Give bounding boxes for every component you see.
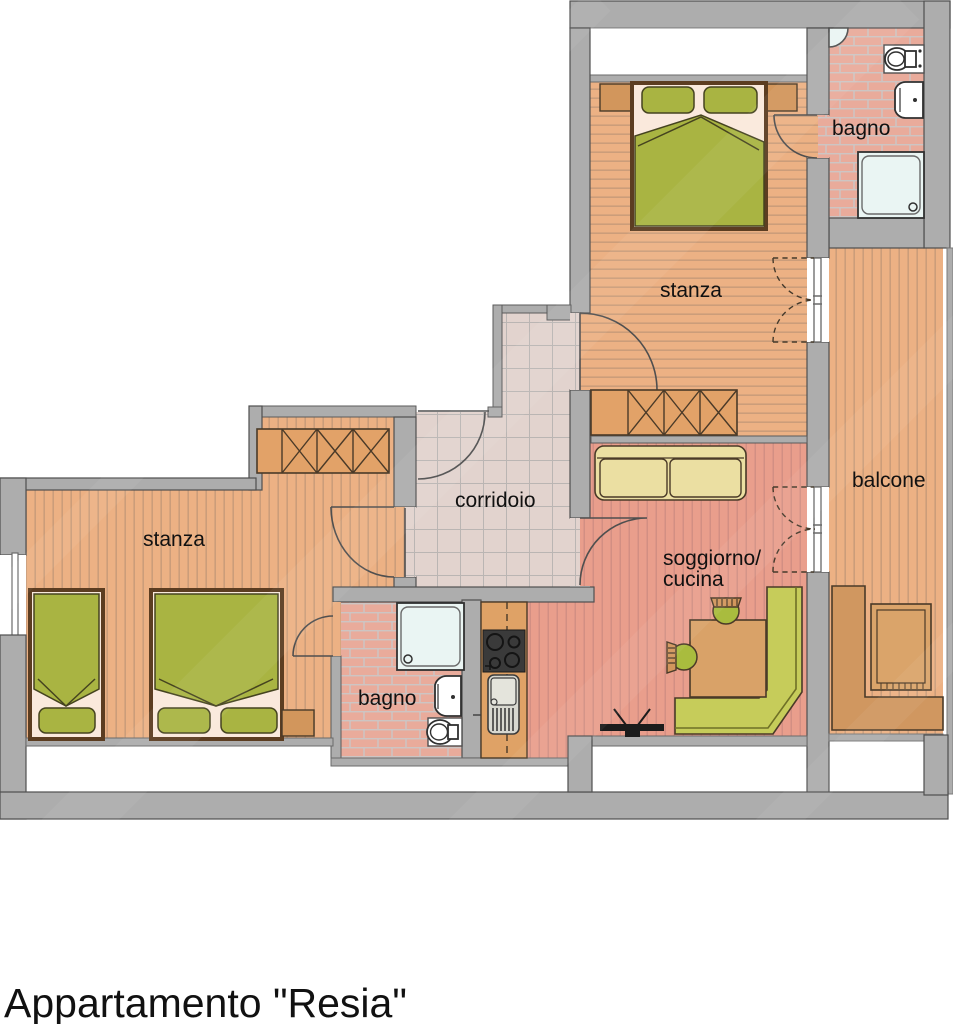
svg-text:bagno: bagno [358,687,416,710]
svg-text:stanza: stanza [660,279,722,302]
svg-text:Appartamento "Resia": Appartamento "Resia" [4,980,407,1024]
svg-text:soggiorno/: soggiorno/ [663,547,761,570]
svg-text:stanza: stanza [143,528,205,551]
svg-text:cucina: cucina [663,568,724,591]
svg-text:balcone: balcone [852,469,926,492]
svg-text:corridoio: corridoio [455,489,536,512]
svg-text:bagno: bagno [832,117,890,140]
